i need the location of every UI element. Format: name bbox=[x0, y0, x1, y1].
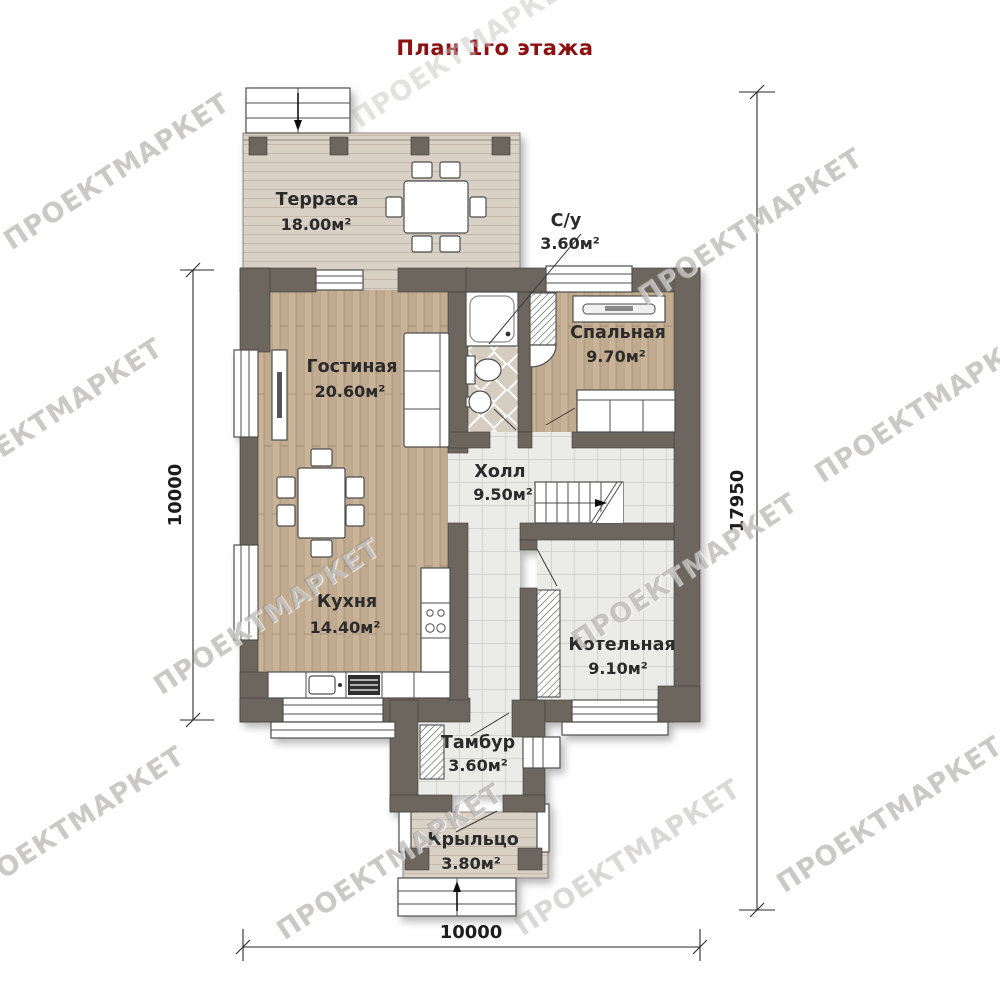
svg-text:Кухня: Кухня bbox=[317, 592, 377, 612]
floor-plan-drawing: Терраса 18.00м² С/у 3.60м² Гостиная 20.6… bbox=[0, 0, 1000, 1000]
staircase bbox=[535, 482, 623, 523]
svg-text:9.10м²: 9.10м² bbox=[588, 659, 648, 678]
kitchen-sink bbox=[309, 676, 335, 694]
terrace-column bbox=[492, 137, 510, 155]
svg-text:3.80м²: 3.80м² bbox=[441, 854, 501, 873]
plan-body bbox=[234, 88, 700, 916]
svg-text:3.60м²: 3.60м² bbox=[448, 756, 508, 775]
terrace-column bbox=[330, 137, 348, 155]
svg-text:10000: 10000 bbox=[165, 464, 186, 527]
living-sofa bbox=[404, 333, 449, 447]
terrace-column bbox=[411, 137, 429, 155]
svg-text:Котельная: Котельная bbox=[568, 635, 675, 655]
wardrobe bbox=[530, 293, 556, 367]
dimension-bottom: 10000 bbox=[236, 922, 707, 961]
window-living-left bbox=[234, 350, 258, 437]
corridor-floor bbox=[468, 523, 520, 722]
svg-text:Тамбур: Тамбур bbox=[441, 733, 515, 753]
svg-text:10000: 10000 bbox=[440, 922, 503, 943]
svg-text:С/у: С/у bbox=[551, 211, 582, 231]
dresser bbox=[573, 296, 665, 322]
svg-text:Крыльцо: Крыльцо bbox=[427, 830, 519, 850]
svg-text:9.50м²: 9.50м² bbox=[473, 485, 533, 504]
dimension-left: 10000 bbox=[165, 263, 214, 727]
floor-plan-page: План 1го этажа bbox=[0, 0, 1000, 1000]
svg-text:14.40м²: 14.40м² bbox=[310, 618, 381, 637]
tv-unit bbox=[272, 350, 287, 440]
svg-text:Терраса: Терраса bbox=[276, 190, 359, 210]
window-bedroom-top bbox=[546, 266, 632, 292]
porch-steps bbox=[398, 878, 516, 916]
terrace-column bbox=[249, 137, 267, 155]
window-terrace-wall bbox=[316, 270, 363, 290]
svg-text:20.60м²: 20.60м² bbox=[315, 382, 386, 401]
terrace-door-opening bbox=[363, 270, 398, 290]
svg-text:Спальная: Спальная bbox=[570, 323, 666, 343]
svg-text:Холл: Холл bbox=[474, 462, 525, 482]
bedroom-sofa bbox=[577, 390, 675, 432]
svg-text:9.70м²: 9.70м² bbox=[586, 347, 646, 366]
dimension-right: 17950 bbox=[727, 85, 775, 917]
svg-text:17950: 17950 bbox=[727, 470, 748, 533]
window-kitchen-left bbox=[234, 545, 258, 640]
porch-column bbox=[518, 848, 542, 870]
window-vestibule-right bbox=[523, 737, 560, 768]
svg-text:18.00м²: 18.00м² bbox=[281, 215, 352, 234]
svg-text:3.60м²: 3.60м² bbox=[540, 234, 600, 253]
boiler-radiator bbox=[537, 590, 560, 697]
porch-column bbox=[405, 848, 429, 870]
window-kitchen-bottom bbox=[271, 698, 395, 738]
window-boiler-bottom bbox=[562, 700, 668, 735]
svg-text:Гостиная: Гостиная bbox=[306, 357, 397, 377]
terrace-steps bbox=[246, 88, 350, 133]
